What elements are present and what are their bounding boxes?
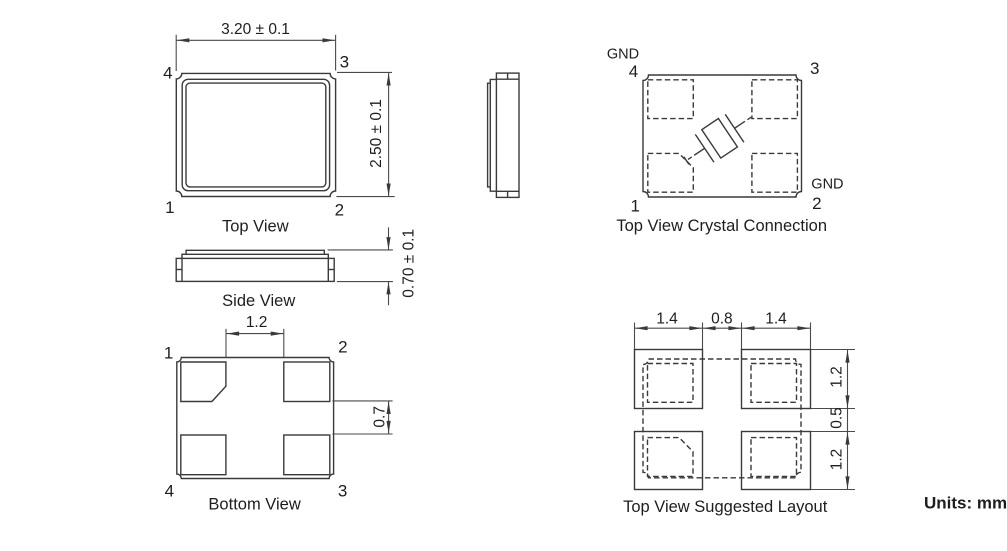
svg-text:4: 4 bbox=[163, 64, 172, 83]
svg-text:0.8: 0.8 bbox=[711, 311, 733, 328]
svg-text:3: 3 bbox=[810, 59, 819, 78]
svg-text:2.50 ± 0.1: 2.50 ± 0.1 bbox=[368, 99, 385, 168]
svg-text:1.2: 1.2 bbox=[829, 449, 846, 471]
svg-text:0.5: 0.5 bbox=[829, 407, 846, 429]
svg-text:3.20 ± 0.1: 3.20 ± 0.1 bbox=[221, 21, 290, 38]
svg-text:2: 2 bbox=[338, 337, 347, 356]
svg-text:1: 1 bbox=[165, 198, 174, 217]
svg-text:Top View Crystal Connection: Top View Crystal Connection bbox=[616, 217, 827, 235]
svg-text:Top View Suggested Layout: Top View Suggested Layout bbox=[623, 498, 828, 516]
svg-text:1: 1 bbox=[164, 343, 173, 362]
svg-text:1.4: 1.4 bbox=[656, 311, 678, 328]
svg-text:Bottom View: Bottom View bbox=[208, 496, 300, 514]
svg-text:Top View: Top View bbox=[222, 218, 289, 236]
svg-text:Side View: Side View bbox=[222, 292, 295, 310]
svg-text:4: 4 bbox=[165, 482, 174, 501]
svg-text:3: 3 bbox=[338, 482, 347, 501]
svg-text:3: 3 bbox=[340, 53, 349, 72]
svg-text:Units: mm: Units: mm bbox=[924, 493, 1007, 512]
svg-text:1: 1 bbox=[630, 197, 639, 216]
svg-text:2: 2 bbox=[335, 201, 344, 220]
svg-text:GND: GND bbox=[811, 177, 843, 193]
svg-text:GND: GND bbox=[607, 46, 639, 62]
svg-text:0.7: 0.7 bbox=[372, 406, 389, 428]
svg-text:2: 2 bbox=[812, 194, 821, 213]
svg-text:1.2: 1.2 bbox=[246, 314, 268, 331]
svg-text:0.70 ± 0.1: 0.70 ± 0.1 bbox=[400, 229, 417, 298]
svg-text:1.2: 1.2 bbox=[829, 366, 846, 388]
svg-text:4: 4 bbox=[629, 62, 638, 81]
svg-text:1.4: 1.4 bbox=[765, 311, 787, 328]
